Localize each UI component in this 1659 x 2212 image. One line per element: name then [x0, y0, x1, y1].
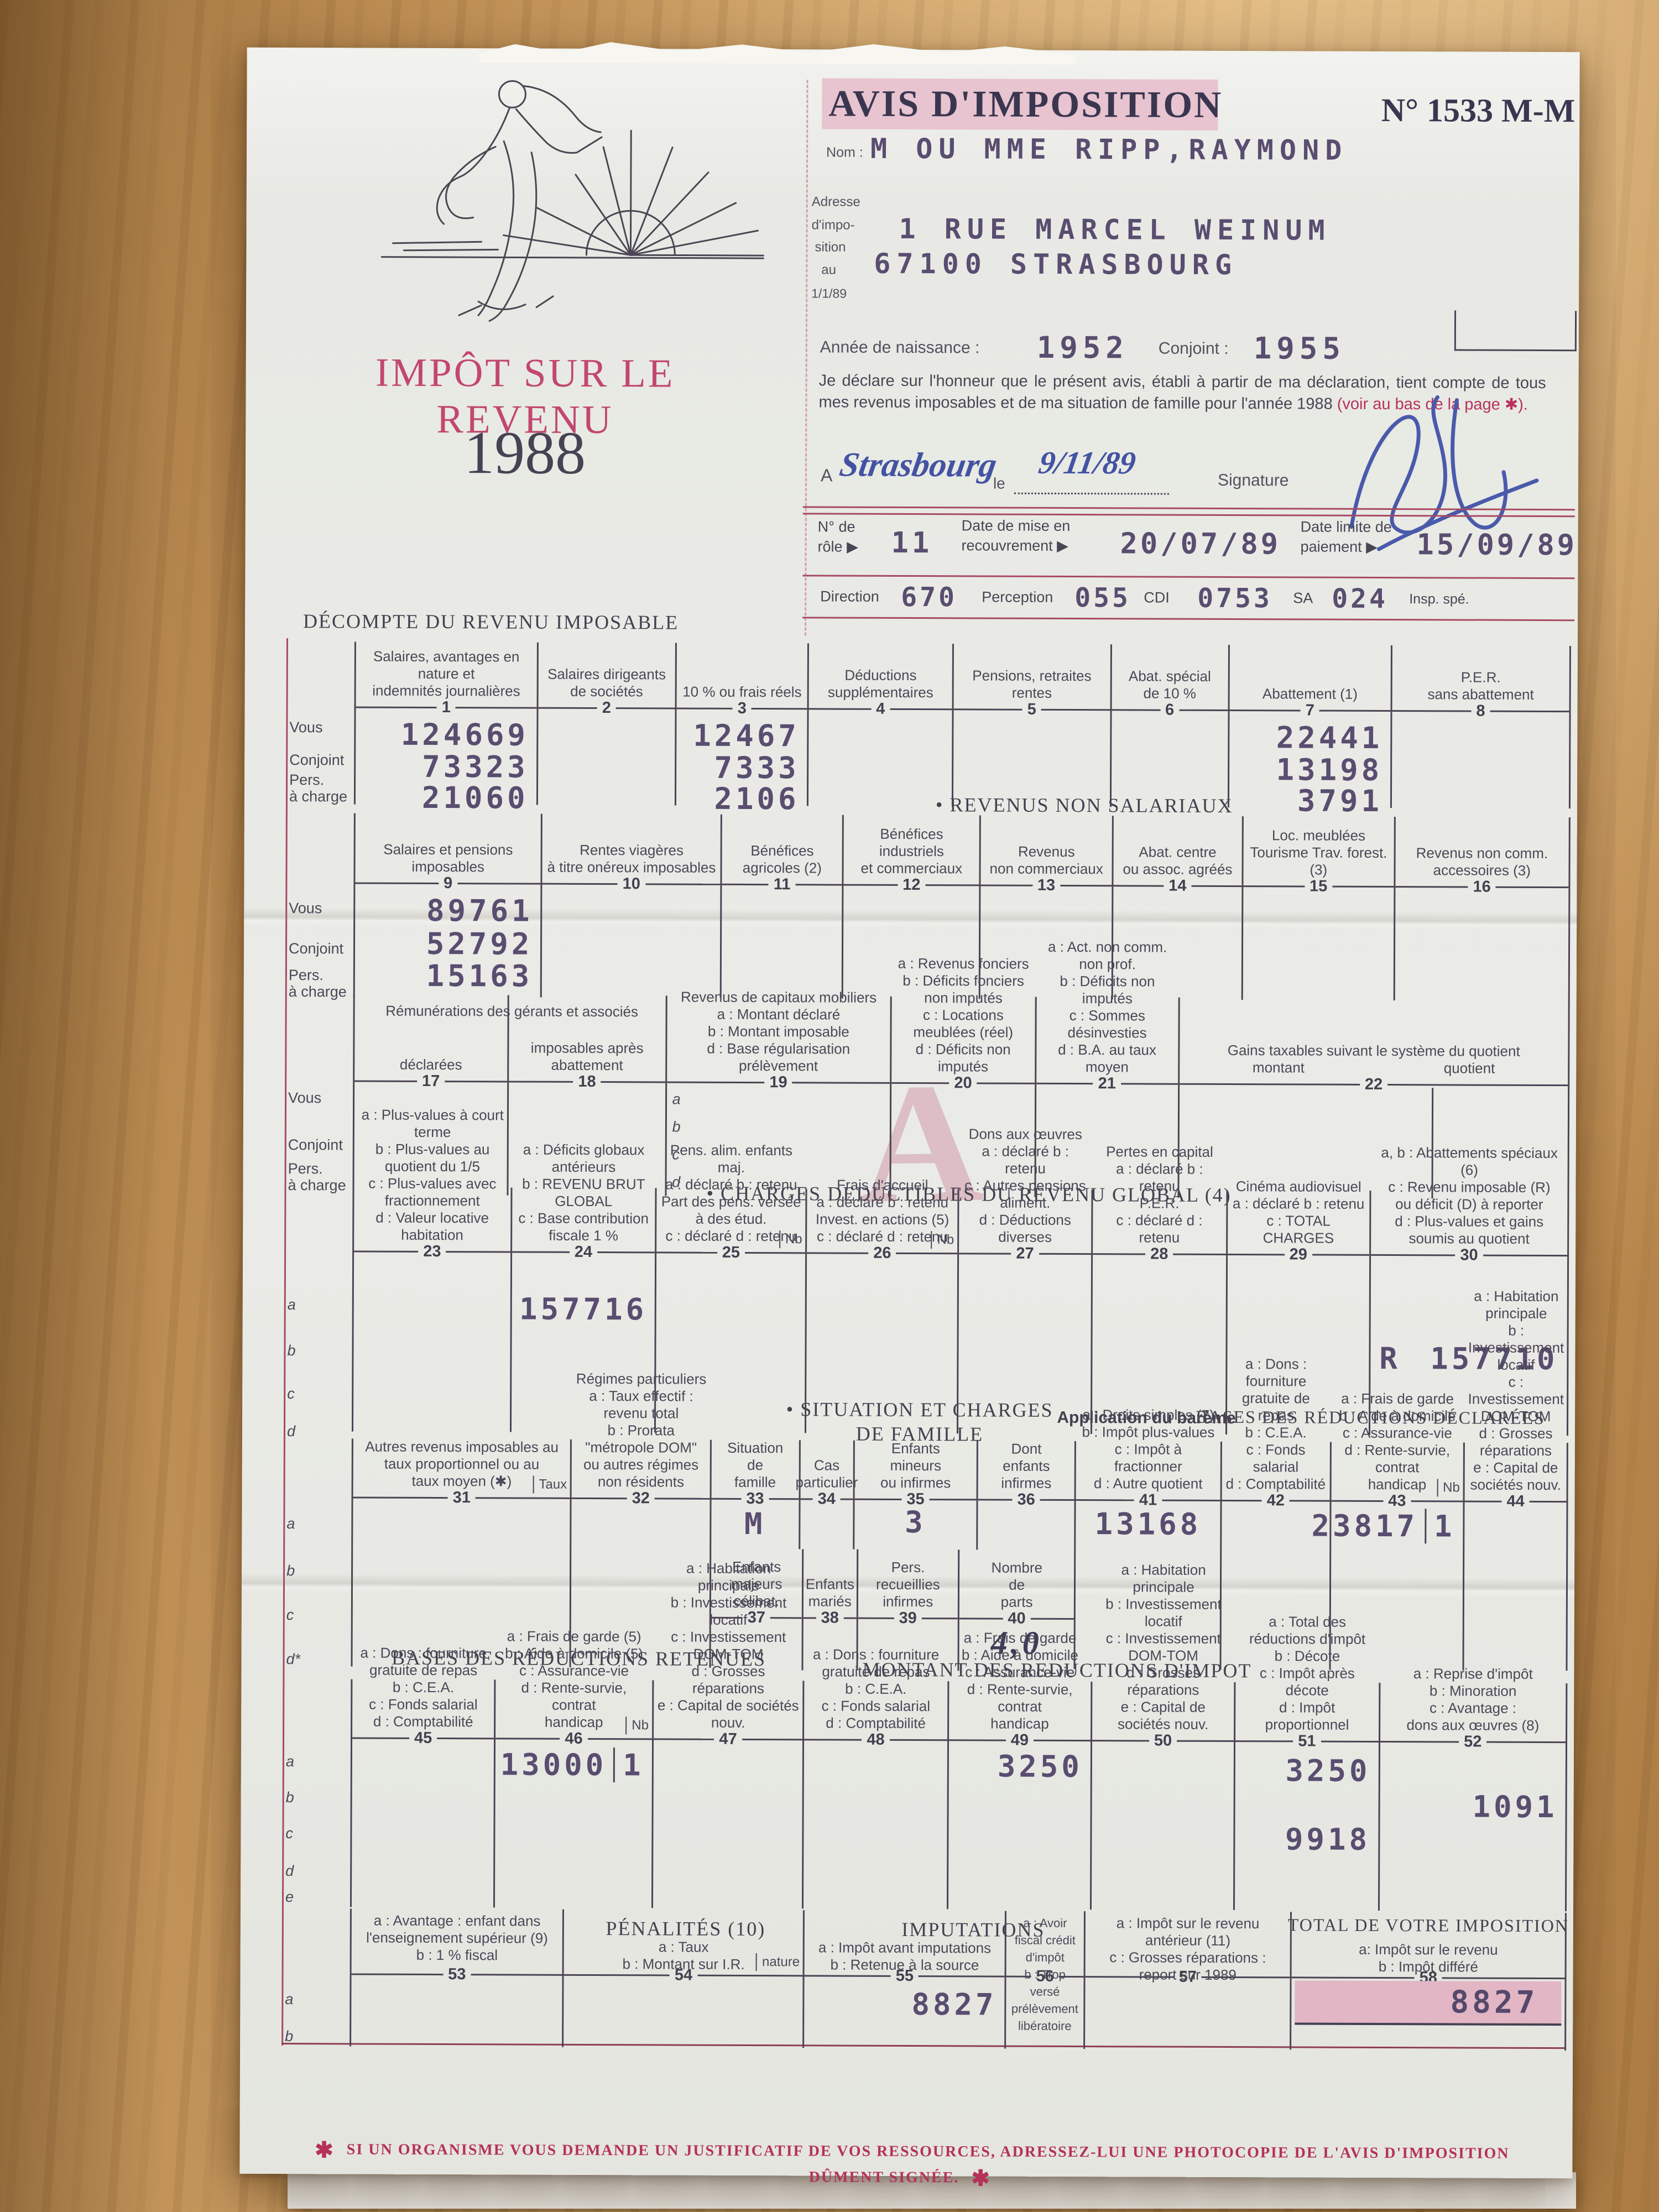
- column-47: a : Habitation principaleb : Investissem…: [651, 1680, 803, 1908]
- column-header-line: a: Impôt sur le revenu: [1359, 1941, 1498, 1959]
- insp-label: Insp. spé.: [1409, 591, 1469, 607]
- column-54: a : Tauxb : Montant sur I.R.nature54: [562, 1910, 804, 2048]
- column-header-line: Cas: [814, 1457, 839, 1474]
- column-header-line: c : Sommes désinvesties: [1040, 1007, 1175, 1042]
- column-header-line: famille: [734, 1474, 776, 1491]
- row-letter: e: [285, 1888, 294, 1905]
- row-letter: b: [287, 1342, 295, 1359]
- column-27: Dons aux œuvresa : déclaré b : retenuc :…: [957, 1189, 1091, 1434]
- column-header: a : Tauxb : Montant sur I.R.nature: [564, 1910, 803, 1973]
- value-number: 13000: [500, 1747, 607, 1782]
- column-header-line: b : Impôt plus-values: [1082, 1423, 1214, 1441]
- highlighted-total-box: 8827: [1295, 1980, 1562, 2026]
- column-header-line: b : Plus-values au quotient du 1/5: [358, 1141, 508, 1176]
- column-header: Situationdefamille: [712, 1440, 799, 1496]
- column-header-line: Invest. en actions (5): [816, 1211, 949, 1228]
- column-header-line: a : Dons : fourniture: [813, 1646, 939, 1663]
- asterisk-icon: ✱: [302, 2137, 347, 2162]
- column-header-line: a : Avantage : enfant dans: [374, 1912, 541, 1930]
- column-header-line: Salaires dirigeants: [547, 666, 666, 684]
- column-header-line: c : Grosses réparations :: [1109, 1949, 1266, 1966]
- column-header-line: d : Rente-survie, contrat: [499, 1679, 649, 1714]
- column-body: [653, 1742, 802, 1908]
- column-header-line: a : Habitation principale: [1096, 1561, 1231, 1596]
- row-letter: b: [286, 1562, 295, 1579]
- typed-value: 73323: [422, 749, 529, 785]
- typed-value: 238171: [1311, 1509, 1455, 1544]
- column-number-line: 24: [512, 1248, 655, 1255]
- value-number: M: [744, 1506, 766, 1541]
- column-number-line: 38: [804, 1614, 856, 1621]
- taxpayer-name: M OU MME RIPP,RAYMOND: [870, 133, 1348, 166]
- typed-value: 52792: [426, 926, 533, 962]
- row-letter: a: [286, 1753, 294, 1770]
- column-header-line: d : Comptabilité: [826, 1714, 926, 1732]
- column-number-line: 40: [959, 1615, 1074, 1622]
- cdi-label: CDI: [1144, 589, 1170, 606]
- value-number: 9918: [1285, 1822, 1370, 1857]
- row-letter: a: [285, 1991, 293, 2007]
- column-header-line: d : B.A. au taux moyen: [1040, 1041, 1175, 1076]
- column-body: 897615279215163: [355, 886, 541, 997]
- column-number-line: 23: [354, 1248, 510, 1255]
- column-header-line: c : Base contribution fiscale 1 %: [515, 1210, 652, 1245]
- row-label-gutter: abcd: [284, 1187, 353, 1431]
- typed-value: 3: [854, 1505, 976, 1540]
- red-rule: [802, 575, 1574, 579]
- value-number: 22441: [1276, 720, 1383, 755]
- column-header-line: c : Investissement DOM-TOM: [1095, 1630, 1230, 1665]
- column-header-line: b : Déficits non imputés: [1040, 973, 1175, 1008]
- limite-label: Date limite de paiement ▶: [1301, 517, 1392, 557]
- column-body: [1111, 713, 1228, 807]
- column-header: Autres revenus imposables autaux proport…: [353, 1438, 571, 1494]
- column-number-line: 33: [712, 1495, 799, 1503]
- column-header-line: c : Assurance-vie: [965, 1663, 1074, 1681]
- column-header-line: de: [747, 1457, 763, 1474]
- address-label-1: Adresse: [812, 194, 860, 210]
- column-number-line: 8: [1392, 707, 1569, 714]
- column-header: P.E.R.sans abattement: [1392, 645, 1569, 708]
- column-16: Revenus non comm.accessoires (3)16: [1393, 817, 1569, 1001]
- column-header-line: Pertes en capital: [1106, 1143, 1213, 1161]
- column-number-line: 45: [352, 1734, 494, 1741]
- column-header: Enfantsmineursou infirmes: [855, 1441, 977, 1496]
- column-body: 1246773332106: [676, 712, 807, 806]
- column-header-line: taux proportionnel ou au: [384, 1455, 540, 1473]
- column-header-line: a : Impôt avant imputations: [818, 1939, 991, 1957]
- column-number-line: 7: [1229, 707, 1390, 714]
- column-header-line: c : Impôt après décote: [1239, 1665, 1375, 1699]
- value-prefix: R: [1379, 1341, 1401, 1376]
- row-letter: d*: [286, 1651, 300, 1667]
- nb-count-value: 1: [1425, 1509, 1455, 1543]
- sub-column-tag: Nb: [931, 1231, 956, 1249]
- cdi-code: 0753: [1197, 583, 1272, 614]
- column-header-line: Bénéfices industriels: [847, 826, 976, 860]
- column-55: a : Impôt avant imputationsb : Retenue à…: [803, 1910, 1005, 2048]
- column-header: imposables après abattement: [509, 995, 665, 1078]
- column-body: 3250: [948, 1743, 1091, 1910]
- column-header: 10 % ou frais réels: [677, 643, 808, 706]
- column-body: [1243, 889, 1394, 1000]
- column-body: [542, 887, 721, 998]
- column-body: M: [711, 1502, 799, 1550]
- typed-value: 8827: [911, 1987, 997, 2022]
- column-body: [953, 712, 1110, 807]
- birth-year: 1952: [1037, 330, 1129, 366]
- column-header-line: non résidents: [598, 1473, 684, 1491]
- column-header: a : Total des réductions d'impôtb : Déco…: [1235, 1682, 1379, 1738]
- row-letter: a: [286, 1515, 295, 1532]
- column-header: Abat. spécialde 10 %: [1112, 644, 1228, 707]
- value-number: 89761: [426, 893, 533, 928]
- birth-year-label: Année de naissance :: [820, 338, 980, 357]
- value-number: 3791: [1297, 783, 1383, 818]
- column-header-line: Salaires, avantages en nature et: [359, 648, 534, 683]
- column-header: a : Reprise d'impôtb : Minorationc : Ava…: [1380, 1683, 1566, 1739]
- column-header: Gains taxables suivant le système du quo…: [1180, 998, 1568, 1082]
- role-label-line1: N° de: [818, 518, 855, 535]
- column-header: déclarées: [354, 994, 508, 1078]
- recouvrement-date: 20/07/89: [1120, 527, 1281, 561]
- column-51: a : Total des réductions d'impôtb : Déco…: [1233, 1682, 1379, 1911]
- column-49: a : Frais de gardeb : Aide à domicilec :…: [947, 1681, 1091, 1910]
- address-line-1: 1 RUE MARCEL WEINUM: [899, 213, 1331, 247]
- column-number-line: 43: [1331, 1498, 1463, 1505]
- value-number: 124669: [401, 717, 529, 753]
- column-header-line: Rentes viagères: [580, 842, 684, 859]
- address-label-3: sition: [815, 239, 846, 255]
- column-header-line: d : Plus-values et gains: [1395, 1213, 1543, 1230]
- value-number: 3: [905, 1505, 926, 1540]
- sower-figure-icon: [437, 81, 602, 321]
- column-header-line: infirmes: [883, 1593, 933, 1610]
- perception-label: Perception: [982, 588, 1053, 606]
- column-header-line: a : Revenus fonciers: [898, 955, 1029, 973]
- column-57: a : Impôt sur le revenu antérieur (11)c …: [1083, 1911, 1290, 2049]
- column-header-line: Abat. centre: [1139, 843, 1216, 860]
- column-header-line: d : Autre quotient: [1094, 1475, 1203, 1493]
- column-number-line: 39: [858, 1615, 958, 1622]
- column-header-line: b : Minoration: [1430, 1682, 1517, 1700]
- column-header-line: b : 1 % fiscal: [416, 1947, 498, 1964]
- column-number-line: 28: [1093, 1250, 1226, 1258]
- tax-year: 1988: [284, 417, 765, 489]
- value-number: 157716: [519, 1292, 647, 1327]
- column-header-line: rentes: [1012, 685, 1052, 702]
- column-header-line: b : C.E.A.: [393, 1679, 454, 1696]
- column-11: Bénéficesagricoles (2)11: [720, 815, 842, 999]
- column-number-line: 13: [981, 881, 1112, 889]
- column-body: [352, 1741, 494, 1907]
- column-header-line: c : Assurance-vie: [519, 1662, 629, 1680]
- recouvrement-label: Date de mise en recouvrement ▶: [962, 515, 1071, 556]
- typed-value: 3250: [998, 1749, 1083, 1785]
- column-body: [564, 1978, 803, 2048]
- column-number-line: 42: [1222, 1497, 1329, 1504]
- sower-marianne-logo: [371, 64, 775, 336]
- column-header-line: parts: [1001, 1594, 1033, 1611]
- direction-label: Direction: [820, 588, 879, 605]
- columns-row: a : Dons : fournituregratuite de repasb …: [350, 1679, 1567, 1911]
- column-header-line: Abat. spécial: [1129, 667, 1211, 685]
- column-45: a : Dons : fournituregratuite de repasb …: [350, 1679, 494, 1907]
- column-header-line: d : Grosses réparations: [657, 1662, 800, 1697]
- column-header-line: de: [1009, 1577, 1025, 1594]
- column-header-line: c : Fonds salarial: [369, 1696, 478, 1714]
- column-header-line: P.E.R.: [1461, 669, 1501, 686]
- column-header-line: a : déclaré b : retenu: [1233, 1195, 1365, 1213]
- column-header-line: particulier: [796, 1474, 858, 1491]
- column-header-line: a : déclaré b : retenu: [665, 1176, 797, 1193]
- column-header-line: c : déclaré d : retenu: [817, 1228, 948, 1245]
- typed-value: 22441: [1276, 720, 1383, 755]
- column-44: a : Habitation principaleb : Investissem…: [1463, 1442, 1567, 1671]
- row-label-gutter: abcd*: [283, 1438, 352, 1666]
- column-header: Revenus de capitaux mobiliersa : Montant…: [667, 995, 890, 1079]
- column-body: [806, 1256, 957, 1433]
- recouvrement-label-line1: Date de mise en: [962, 517, 1071, 534]
- row-letter: b: [286, 1789, 294, 1806]
- column-52: a : Reprise d'impôtb : Minorationc : Ava…: [1378, 1683, 1566, 1911]
- column-header-line: imposables: [411, 858, 484, 875]
- column-50: a : Habitation principaleb : Investissem…: [1090, 1682, 1234, 1910]
- sub-column-tag: Nb: [1437, 1479, 1461, 1496]
- value-number: 12467: [693, 718, 800, 754]
- column-header: a : Déficits globaux antérieursb : REVEN…: [512, 1187, 655, 1249]
- column-header-line: a : Frais de garde (5): [507, 1627, 641, 1645]
- column-body: 1246697332321060: [356, 710, 536, 805]
- column-header-line: a : déclaré b : retenu: [1096, 1160, 1223, 1195]
- column-header-line: a : Impôt sur le revenu antérieur (11): [1089, 1914, 1287, 1949]
- value-number: 21060: [422, 780, 529, 816]
- column-header-line: dons aux œuvres (8): [1406, 1717, 1539, 1734]
- column-header-line: ou assoc. agréés: [1123, 860, 1232, 878]
- column-4: Déductionssupplémentaires4: [807, 643, 952, 806]
- column-header-line: b : Retenue à la source: [830, 1957, 979, 1974]
- asterisk-icon: ✱: [959, 2166, 1003, 2190]
- typed-value: 21060: [422, 780, 529, 816]
- column-header: a: Impôt sur le revenub : Impôt différé: [1292, 1912, 1565, 1975]
- sub-column-tag: Nb: [779, 1230, 804, 1248]
- column-header-line: a : Déficits globaux antérieurs: [515, 1141, 652, 1176]
- column-header-line: b : C.E.A.: [1245, 1424, 1306, 1441]
- column-header-line: b : Prorata "métropole DOM": [575, 1422, 707, 1457]
- column-34: Casparticulier34: [799, 1440, 853, 1549]
- limite-label-line2: paiement ▶: [1301, 538, 1378, 555]
- column-header-line: a : Montant déclaré: [717, 1006, 841, 1024]
- column-header: a : Avoir fiscal crédit d'impôtb : Trop …: [1006, 1911, 1084, 1973]
- column-body: [1006, 1980, 1083, 2049]
- column-2: Salaires dirigeantsde sociétés2: [536, 643, 675, 806]
- typed-value: 3791: [1297, 783, 1383, 818]
- column-header: a : Revenus fonciersb : Déficits foncier…: [891, 997, 1035, 1080]
- column-header-line: à titre onéreux imposables: [547, 859, 716, 877]
- column-header-line: b : Impôt différé: [1379, 1958, 1478, 1976]
- column-header: a : Impôt sur le revenu antérieur (11)c …: [1086, 1911, 1291, 1974]
- column-header-line: d : Comptabilité: [1225, 1475, 1326, 1493]
- column-header-line: b : Investissement locatif: [658, 1594, 800, 1629]
- column-header: Cinéma audiovisuela : déclaré b : retenu…: [1228, 1190, 1370, 1251]
- column-number-line: 12: [844, 881, 979, 889]
- column-header: a, b : Abattements spéciaux (6)c : Reven…: [1371, 1191, 1567, 1252]
- name-label: Nom :: [826, 144, 863, 160]
- row-label-gutter: VousConjointPers. à charge: [285, 813, 354, 997]
- column-header: a : Dons : fournituregratuite de repasb …: [804, 1681, 947, 1736]
- typed-value: 2106: [714, 781, 799, 817]
- value-number: 2106: [714, 781, 799, 817]
- column-number-line: 49: [949, 1736, 1091, 1744]
- row-letter: c: [285, 1825, 293, 1841]
- column-number-line: 15: [1243, 883, 1394, 890]
- column-number-line: 50: [1092, 1737, 1234, 1744]
- column-body: [808, 712, 952, 806]
- column-28: Pertes en capitala : déclaré b : retenuP…: [1091, 1190, 1226, 1434]
- column-header-line: ou infirmes: [880, 1474, 951, 1491]
- limite-date: 15/09/89: [1416, 528, 1577, 562]
- value-number: 8827: [911, 1987, 997, 2022]
- column-23: a : Plus-values à court termeb : Plus-va…: [352, 1187, 510, 1432]
- column-number-line: 11: [722, 881, 842, 888]
- column-header-line: e : Capital de sociétés nouv.: [657, 1697, 800, 1731]
- column-header-line: d : Rente-survie, contrat: [952, 1681, 1087, 1715]
- column-header: a : Avantage : enfant dansl'enseignement…: [352, 1908, 563, 1971]
- column-number-line: 32: [572, 1495, 710, 1502]
- column-header-line: Situation: [727, 1439, 783, 1457]
- column-8: P.E.R.sans abattement8: [1390, 645, 1569, 808]
- column-number-line: 47: [654, 1735, 802, 1743]
- column-header: a : Droits simples (7)b : Impôt plus-val…: [1076, 1441, 1220, 1497]
- column-header-line: c : Revenu imposable (R): [1388, 1178, 1550, 1196]
- column-header-line: Revenus de capitaux mobiliers: [681, 989, 877, 1006]
- column-header-line: Revenus: [1018, 843, 1075, 860]
- column-number-line: 35: [854, 1496, 976, 1503]
- column-header-line: b : Aide à domicile: [1339, 1407, 1455, 1425]
- column-header: a : Frais de gardeb : Aide à domicilec :…: [949, 1681, 1091, 1737]
- column-48: a : Dons : fournituregratuite de repasb …: [802, 1681, 947, 1909]
- column-26: Frais d'accueila : déclaré b : retenuInv…: [805, 1188, 957, 1433]
- column-header-line: a : déclaré b : retenu: [816, 1193, 948, 1211]
- red-rule: [802, 617, 1574, 621]
- column-header: a : Frais de gardeb : Aide à domicilec :…: [1331, 1442, 1463, 1498]
- column-header: Dontenfantsinfirmes: [978, 1441, 1074, 1496]
- column-header: a : Dons : fournituregratuite de repasb …: [352, 1679, 494, 1735]
- value-number: 15163: [426, 958, 533, 994]
- typed-value: 15163: [426, 958, 533, 994]
- sub-column-tag: Nb: [625, 1717, 650, 1734]
- column-header-line: b : Montant imposable: [708, 1023, 849, 1041]
- column-header: Bénéfices industrielset commerciaux: [844, 815, 980, 882]
- row-label: Pers. à charge: [289, 771, 347, 805]
- column-header: a : Frais de garde (5)b : Aide à domicil…: [495, 1679, 652, 1735]
- split-subheader: quotient: [1444, 1060, 1495, 1077]
- column-body: [1392, 714, 1569, 808]
- sub-column-tag: nature: [756, 1953, 801, 1971]
- column-header-line: sans abattement: [1427, 686, 1533, 703]
- column-header-line: c : Fonds salarial: [821, 1697, 930, 1715]
- column-body: [722, 888, 842, 999]
- column-header-line: Dons aux œuvres: [969, 1125, 1082, 1143]
- typed-value: 7333: [714, 750, 799, 786]
- row-letter: d: [285, 1863, 294, 1879]
- typed-value: 8827: [1450, 1984, 1538, 2021]
- column-header-line: Frais d'accueil: [837, 1177, 928, 1194]
- column-header-line: d : Déductions diverses: [962, 1211, 1088, 1246]
- column-body: [1395, 890, 1568, 1001]
- spouse-label: Conjoint :: [1159, 340, 1229, 358]
- column-header-line: b : REVENU BRUT GLOBAL: [515, 1176, 652, 1211]
- section-reductions: abcdea : Dons : fournituregratuite de re…: [282, 1679, 1567, 1911]
- column-header-line: Déductions: [844, 667, 916, 684]
- column-header: Frais d'accueila : déclaré b : retenuInv…: [807, 1188, 958, 1250]
- column-header-line: a : Plus-values à court terme: [358, 1107, 508, 1141]
- column-body: 8827: [1292, 1980, 1565, 2051]
- header-divider: [805, 80, 808, 635]
- family-subcols: Situationdefamille33MCasparticulier34Enf…: [711, 1440, 1074, 1550]
- column-header-line: Part des pens. versée à des étud.: [660, 1193, 802, 1228]
- value-number: 1091: [1472, 1790, 1557, 1825]
- tax-notice-paper: IMPÔT SUR LE REVENU 1988 AVIS D'IMPOSITI…: [239, 48, 1579, 2178]
- column-body: [538, 711, 675, 806]
- column-number-line: 27: [959, 1250, 1091, 1257]
- column-header: Salaires dirigeantsde sociétés: [538, 643, 675, 705]
- typed-value: 130001: [500, 1747, 644, 1782]
- column-15: Loc. meubléesTourisme Trav. forest. (3)1…: [1241, 816, 1394, 1000]
- column-header-line: P.E.R.: [1140, 1194, 1180, 1212]
- column-36: Dontenfantsinfirmes36: [976, 1441, 1074, 1550]
- column-header-line: gratuite de repas: [1225, 1390, 1327, 1425]
- row-letter: d: [287, 1423, 295, 1439]
- column-header-line: Enfants: [891, 1440, 940, 1457]
- column-header: Casparticulier: [800, 1440, 853, 1495]
- column-body: [978, 1503, 1074, 1550]
- sub-column-tag: Taux: [533, 1476, 568, 1494]
- column-number-line: 5: [953, 706, 1110, 713]
- section-title: DÉCOMPTE DU REVENU IMPOSABLE: [303, 609, 679, 634]
- column-header: Régimes particuliersa : Taux effectif : …: [572, 1439, 710, 1495]
- column-header-line: ou déficit (D) à reporter: [1395, 1196, 1543, 1213]
- column-number-line: 34: [800, 1495, 853, 1502]
- column-header-line: d : Base régularisation prélèvement: [670, 1040, 887, 1074]
- address-line-2: 67100 STRASBOURG: [874, 248, 1238, 281]
- column-46: a : Frais de garde (5)b : Aide à domicil…: [493, 1679, 652, 1908]
- column-number-line: 10: [542, 880, 721, 888]
- column-header-line: d : Impôt proportionnel: [1239, 1699, 1375, 1734]
- column-header-line: handicap: [545, 1714, 603, 1731]
- row-letter: a: [672, 1091, 681, 1108]
- column-header-line: a : Dons : fourniture: [1225, 1355, 1327, 1390]
- column-header: Abat. centreou assoc. agréés: [1113, 816, 1241, 883]
- column-number-line: 36: [978, 1496, 1074, 1503]
- split-subheaders: montantquotient: [1183, 1059, 1564, 1077]
- role-label-line2: rôle ▶: [818, 538, 858, 555]
- column-header-line: c : Plus-values avec fractionnement: [357, 1175, 507, 1210]
- column-58: a: Impôt sur le revenub : Impôt différé5…: [1290, 1912, 1565, 2051]
- column-header: Bénéficesagricoles (2): [722, 815, 842, 881]
- column-header: Pertes en capitala : déclaré b : retenuP…: [1093, 1190, 1226, 1251]
- row-letter: b: [285, 2028, 293, 2044]
- column-number-line: 20: [891, 1079, 1034, 1087]
- column-header-line: a : Frais de garde: [1341, 1390, 1454, 1408]
- column-header-line: c : Locations meublées (réel): [895, 1006, 1032, 1041]
- column-number-line: 16: [1395, 883, 1568, 890]
- column-body: [351, 1977, 562, 2047]
- column-header-line: b : Montant sur I.R.: [622, 1955, 744, 1973]
- column-header-line: ou autres régimes: [583, 1456, 698, 1474]
- column-10: Rentes viagèresà titre onéreux imposable…: [540, 814, 721, 998]
- column-header-line: taux moyen (✱): [411, 1473, 512, 1490]
